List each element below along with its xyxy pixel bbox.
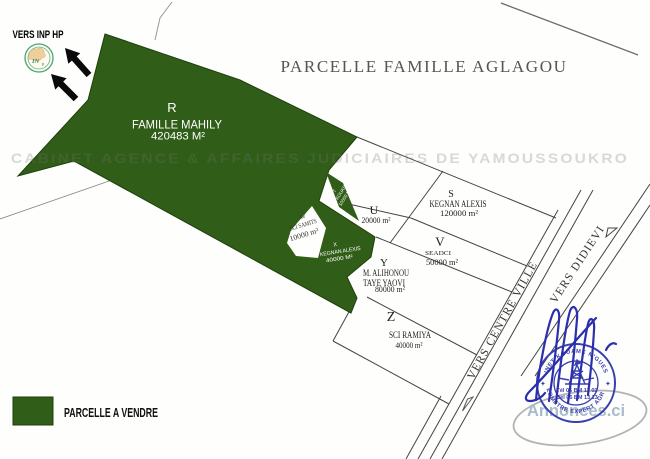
svg-text:V: V xyxy=(435,234,445,249)
svg-text:IN: IN xyxy=(31,58,40,65)
svg-text:PARCELLE FAMILLE AGLAGOU: PARCELLE FAMILLE AGLAGOU xyxy=(281,57,568,76)
svg-text:✦: ✦ xyxy=(540,380,546,388)
svg-text:VERS INP HP: VERS INP HP xyxy=(13,29,64,41)
svg-text:50000 m²: 50000 m² xyxy=(426,257,458,267)
svg-text:40000 m²: 40000 m² xyxy=(396,340,423,350)
svg-text:80000 m²: 80000 m² xyxy=(375,284,405,294)
svg-text:R: R xyxy=(167,100,176,115)
svg-text:FAMILLE MAHILY: FAMILLE MAHILY xyxy=(132,118,222,132)
svg-text:✦: ✦ xyxy=(605,380,611,388)
svg-text:420483 M²: 420483 M² xyxy=(151,131,205,143)
svg-text:120000 m²: 120000 m² xyxy=(440,208,478,218)
svg-text:SCI RAMIYA: SCI RAMIYA xyxy=(389,330,431,340)
svg-text:PARCELLE A VENDRE: PARCELLE A VENDRE xyxy=(64,405,158,420)
svg-text:Z: Z xyxy=(387,310,396,325)
svg-text:Y: Y xyxy=(380,257,388,269)
svg-text:M. ALIHONOU: M. ALIHONOU xyxy=(363,269,409,279)
svg-text:SEADCI: SEADCI xyxy=(425,250,451,257)
svg-text:CABINET AGENCE & AFFAIRES JUDI: CABINET AGENCE & AFFAIRES JUDICIAIRES DE… xyxy=(11,150,629,166)
svg-text:20000 m²: 20000 m² xyxy=(362,215,391,225)
